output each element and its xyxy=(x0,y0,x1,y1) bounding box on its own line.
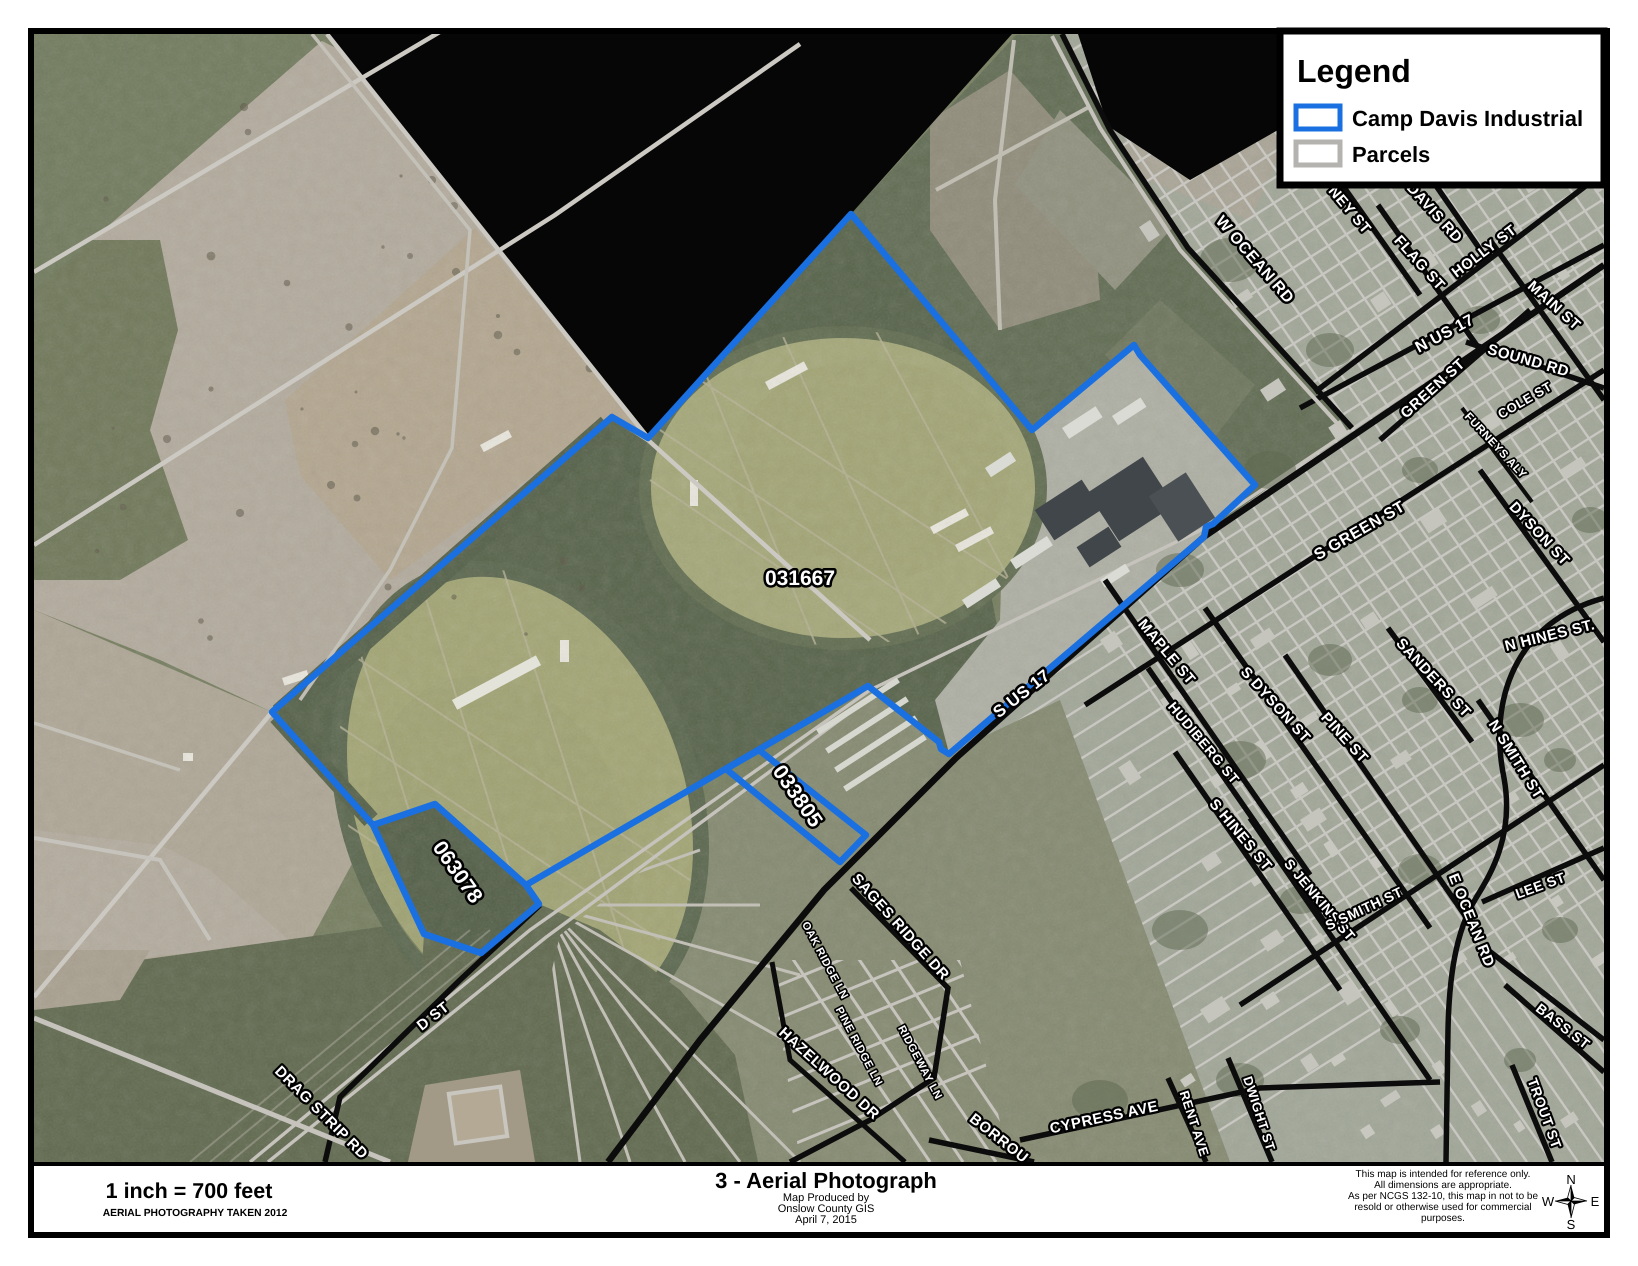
svg-text:Camp Davis Industrial: Camp Davis Industrial xyxy=(1352,106,1583,131)
svg-text:3 - Aerial Photograph: 3 - Aerial Photograph xyxy=(715,1168,937,1193)
svg-text:E: E xyxy=(1591,1194,1600,1209)
svg-text:031667: 031667 xyxy=(765,567,835,590)
svg-text:N: N xyxy=(1566,1172,1575,1187)
svg-text:1 inch = 700 feet: 1 inch = 700 feet xyxy=(106,1179,273,1203)
svg-text:As per NCGS 132-10, this map i: As per NCGS 132-10, this map in not to b… xyxy=(1348,1191,1539,1202)
svg-text:AERIAL PHOTOGRAPHY TAKEN 2012: AERIAL PHOTOGRAPHY TAKEN 2012 xyxy=(103,1208,288,1219)
svg-text:This map is intended for refer: This map is intended for reference only. xyxy=(1356,1169,1531,1180)
svg-text:All dimensions are appropriate: All dimensions are appropriate. xyxy=(1374,1180,1512,1191)
svg-text:resold or otherwise used for c: resold or otherwise used for commercial xyxy=(1354,1202,1531,1213)
svg-text:Legend: Legend xyxy=(1297,53,1411,89)
svg-text:W: W xyxy=(1542,1194,1555,1209)
svg-text:April 7, 2015: April 7, 2015 xyxy=(795,1214,857,1226)
svg-text:purposes.: purposes. xyxy=(1421,1213,1465,1224)
svg-text:S: S xyxy=(1567,1217,1576,1232)
svg-text:Parcels: Parcels xyxy=(1352,142,1430,167)
